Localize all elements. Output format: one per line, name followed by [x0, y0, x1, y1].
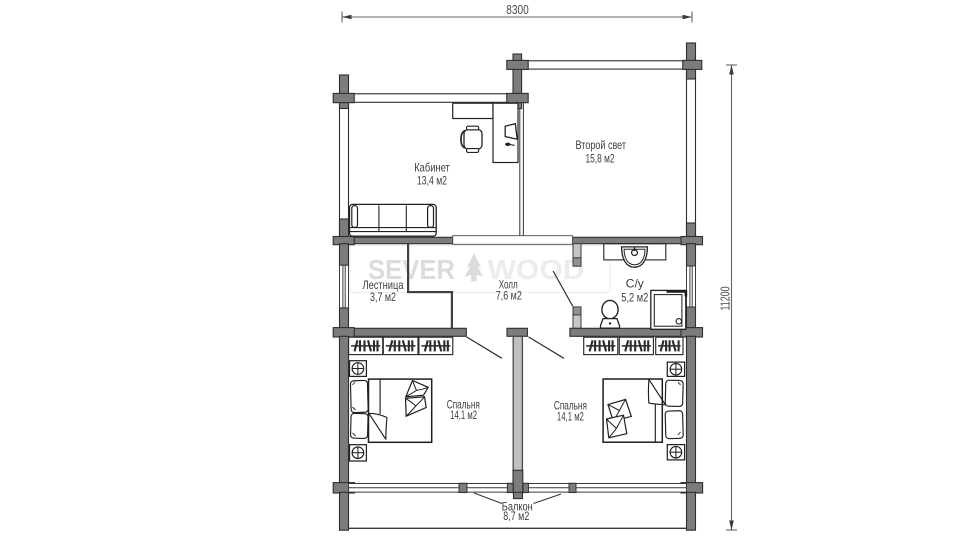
- svg-text:11200: 11200: [717, 287, 732, 311]
- svg-text:С/у: С/у: [626, 276, 644, 290]
- svg-text:7,6 м2: 7,6 м2: [496, 289, 522, 303]
- svg-text:15,8 м2: 15,8 м2: [586, 151, 615, 165]
- svg-text:14,1 м2: 14,1 м2: [557, 409, 584, 423]
- svg-text:8300: 8300: [506, 2, 529, 17]
- svg-text:5,2 м2: 5,2 м2: [621, 291, 648, 305]
- svg-text:Второй свет: Второй свет: [576, 138, 627, 152]
- svg-text:3,7 м2: 3,7 м2: [370, 290, 396, 304]
- svg-text:14,1 м2: 14,1 м2: [450, 408, 477, 422]
- svg-text:8,7 м2: 8,7 м2: [503, 509, 529, 523]
- svg-text:13,4 м2: 13,4 м2: [417, 173, 447, 187]
